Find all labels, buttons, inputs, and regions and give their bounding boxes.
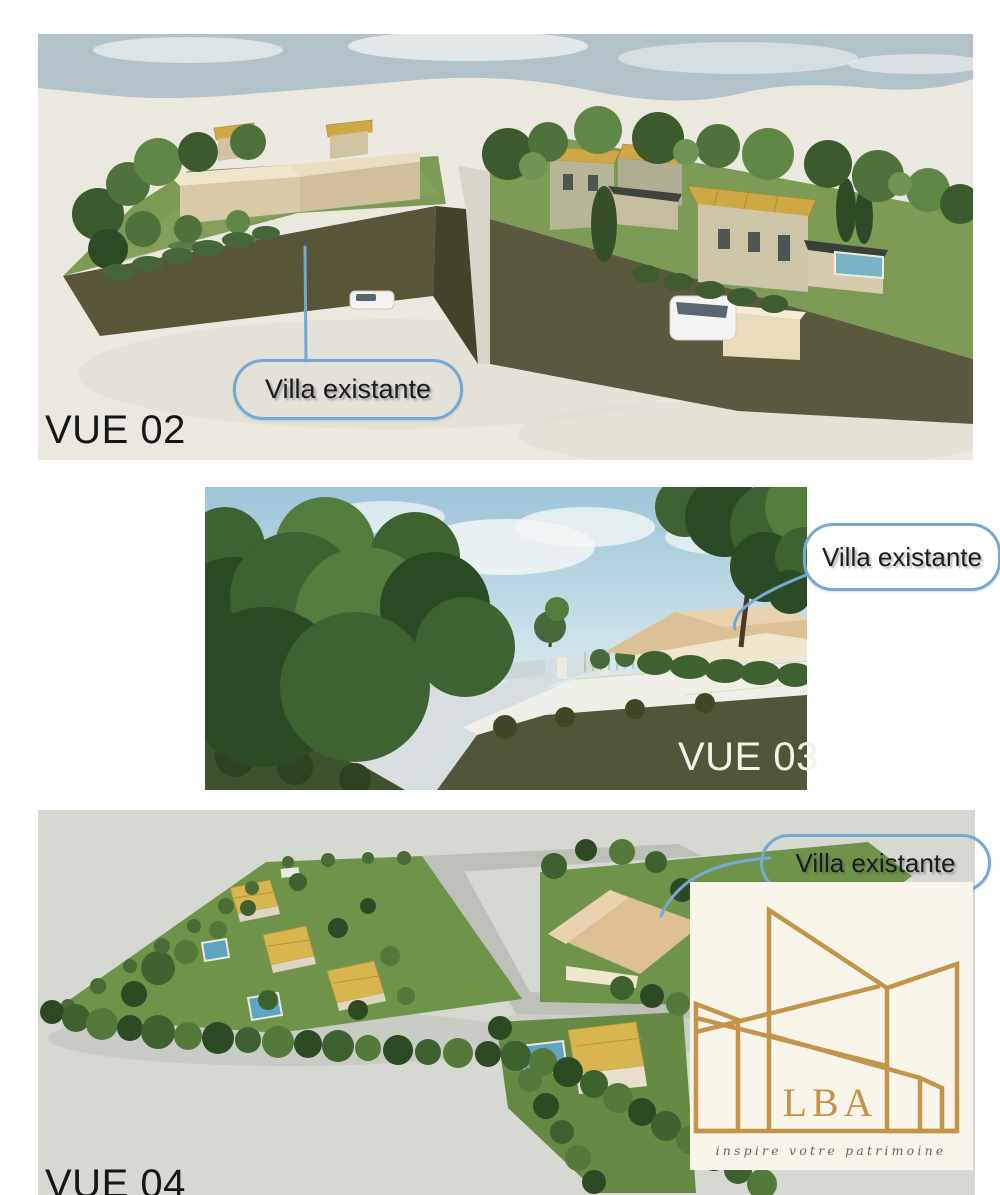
callout-vue02: Villa existante [233, 359, 463, 420]
lba-logo: LBA inspire votre patrimoine [690, 882, 973, 1170]
callout-vue03: Villa existante [803, 523, 1000, 591]
logo-tagline: inspire votre patrimoine [716, 1143, 947, 1158]
house-c [688, 186, 816, 292]
vue04-label: VUE 04 [45, 1164, 186, 1195]
vue02-render [38, 34, 973, 460]
vue03-label: VUE 03 [678, 737, 819, 777]
vue02-section [38, 34, 973, 460]
cypress-hedge [591, 186, 617, 262]
pool-1 [202, 939, 229, 961]
white-van [670, 296, 736, 340]
pool [835, 252, 883, 278]
logo-acronym: LBA [783, 1080, 878, 1125]
vue02-label: VUE 02 [45, 410, 186, 450]
flyer-page: Villa existante Villa existante Villa ex… [0, 0, 1000, 1195]
